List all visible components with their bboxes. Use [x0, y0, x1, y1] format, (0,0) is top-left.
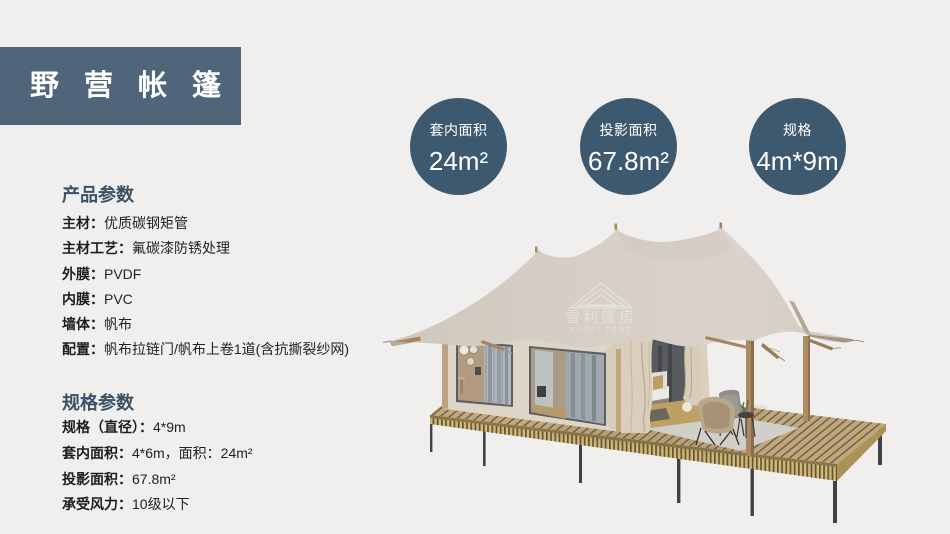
svg-text:雪利篷房: 雪利篷房 — [565, 308, 637, 326]
svg-text:XUELI TENT: XUELI TENT — [569, 325, 632, 334]
